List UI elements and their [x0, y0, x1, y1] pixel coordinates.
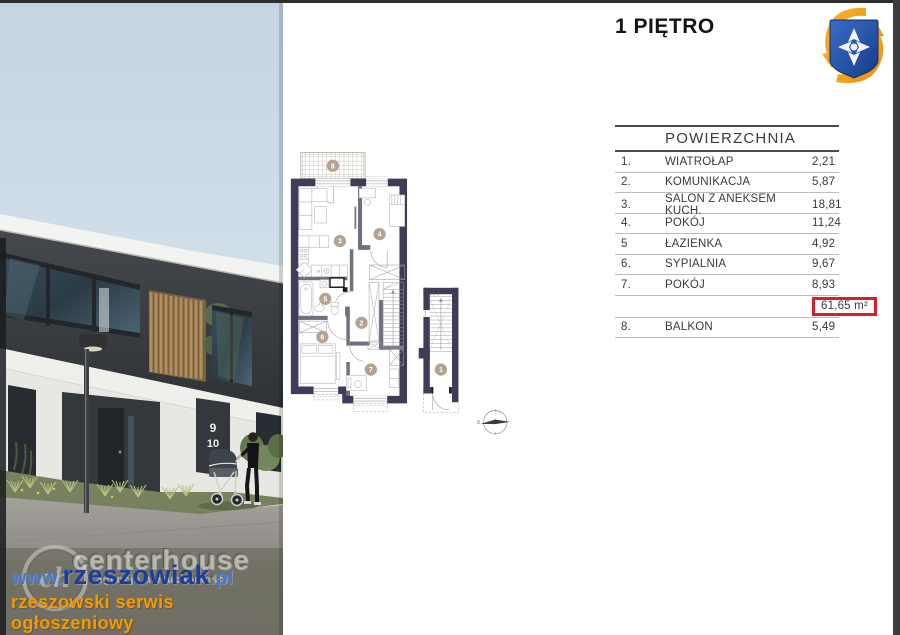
room-badge-6: 6 [320, 334, 324, 341]
room-badge-2: 2 [360, 320, 364, 327]
row-room-name: ŁAZIENKA [665, 238, 807, 250]
stairwell-unit [419, 288, 459, 413]
area-table-row: 6.SYPIALNIA9,67 [615, 255, 839, 276]
shaft [330, 278, 344, 287]
room-badge-4: 4 [378, 232, 382, 239]
room-badge-7: 7 [369, 367, 373, 374]
room-badge-1: 1 [439, 367, 443, 374]
house-photo: 9 10 [0, 0, 283, 635]
area-table-row: 7.POKÓJ8,93 [615, 275, 839, 296]
row-area-value: 5,87 [807, 176, 839, 188]
row-number: 4. [615, 217, 665, 229]
house-number-10: 10 [207, 438, 219, 450]
area-table-title: POWIERZCHNIA [615, 125, 839, 152]
area-table-row: 3.SALON Z ANEKSEM KUCH.18,81 [615, 193, 839, 214]
row-number: 3. [615, 199, 665, 211]
room-badge-8: 8 [331, 163, 335, 170]
area-table-total-row: 61,65 m² [615, 296, 839, 318]
row-number: 5 [615, 238, 665, 250]
area-table-row: 2.KOMUNIKACJA5,87 [615, 173, 839, 194]
row-number: 2. [615, 176, 665, 188]
compass-icon: N [476, 409, 510, 436]
row-room-name: BALKON [665, 321, 807, 333]
kitchen-zm-label: ZM [316, 270, 321, 274]
area-table: POWIERZCHNIA 1.WIATROŁAP2,212.KOMUNIKACJ… [615, 125, 839, 338]
row-number: 6. [615, 258, 665, 270]
row-area-value: 9,67 [807, 258, 839, 270]
page-title: 1 PIĘTRO [615, 15, 715, 39]
frame-edge [0, 238, 6, 635]
row-area-value: 2,21 [807, 156, 839, 168]
row-area-value: 5,49 [807, 321, 839, 333]
area-table-row: 1.WIATROŁAP2,21 [615, 152, 839, 173]
row-number: 7. [615, 279, 665, 291]
real-estate-flyer: 9 10 [0, 0, 900, 635]
area-table-row: 4.POKÓJ11,24 [615, 214, 839, 235]
row-room-name: POKÓJ [665, 279, 807, 291]
row-room-name: SYPIALNIA [665, 258, 807, 270]
room-badge-5: 5 [323, 297, 327, 304]
row-number: 8. [615, 321, 665, 333]
stairs-main [368, 283, 404, 350]
area-table-rows: 1.WIATROŁAP2,212.KOMUNIKACJA5,873.SALON … [615, 152, 839, 338]
row-room-name: WIATROŁAP [665, 156, 807, 168]
total-area-highlight: 61,65 m² [812, 297, 877, 316]
row-area-value: 8,93 [807, 279, 839, 291]
row-room-name: KOMUNIKACJA [665, 176, 807, 188]
area-table-row: 8.BALKON5,49 [615, 318, 839, 339]
row-room-name: POKÓJ [665, 217, 807, 229]
house-number-9: 9 [210, 421, 217, 435]
row-area-value: 18,81 [807, 199, 842, 211]
row-area-value: 4,92 [807, 238, 839, 250]
house-render: 9 10 [0, 0, 283, 635]
room-badge-3: 3 [338, 239, 342, 246]
area-table-row: 5ŁAZIENKA4,92 [615, 234, 839, 255]
door-sidelight [128, 416, 134, 488]
row-room-name: SALON Z ANEKSEM KUCH. [665, 193, 807, 217]
rzeszow-crest-logo [818, 4, 888, 88]
foreground-shadow [0, 548, 283, 635]
top-border [0, 0, 900, 3]
compass-n-label: N [476, 420, 481, 423]
curtain [99, 288, 109, 332]
right-border [893, 0, 900, 635]
front-door [98, 408, 124, 490]
row-number: 1. [615, 156, 665, 168]
row-area-value: 11,24 [807, 217, 841, 229]
frame-edge-right [279, 0, 283, 635]
